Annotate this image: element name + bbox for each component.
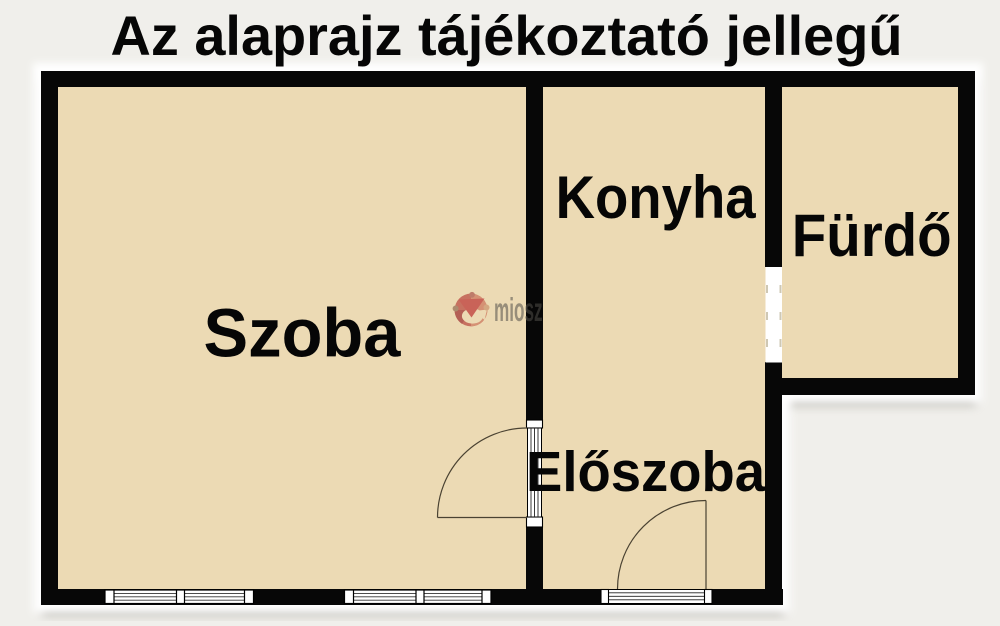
svg-text:Az alaprajz tájékoztató jelleg: Az alaprajz tájékoztató jellegű: [111, 4, 903, 67]
svg-text:Fürdő: Fürdő: [792, 202, 952, 269]
svg-text:Konyha: Konyha: [556, 164, 757, 231]
svg-text:Szoba: Szoba: [204, 295, 402, 372]
svg-text:Előszoba: Előszoba: [526, 440, 766, 504]
